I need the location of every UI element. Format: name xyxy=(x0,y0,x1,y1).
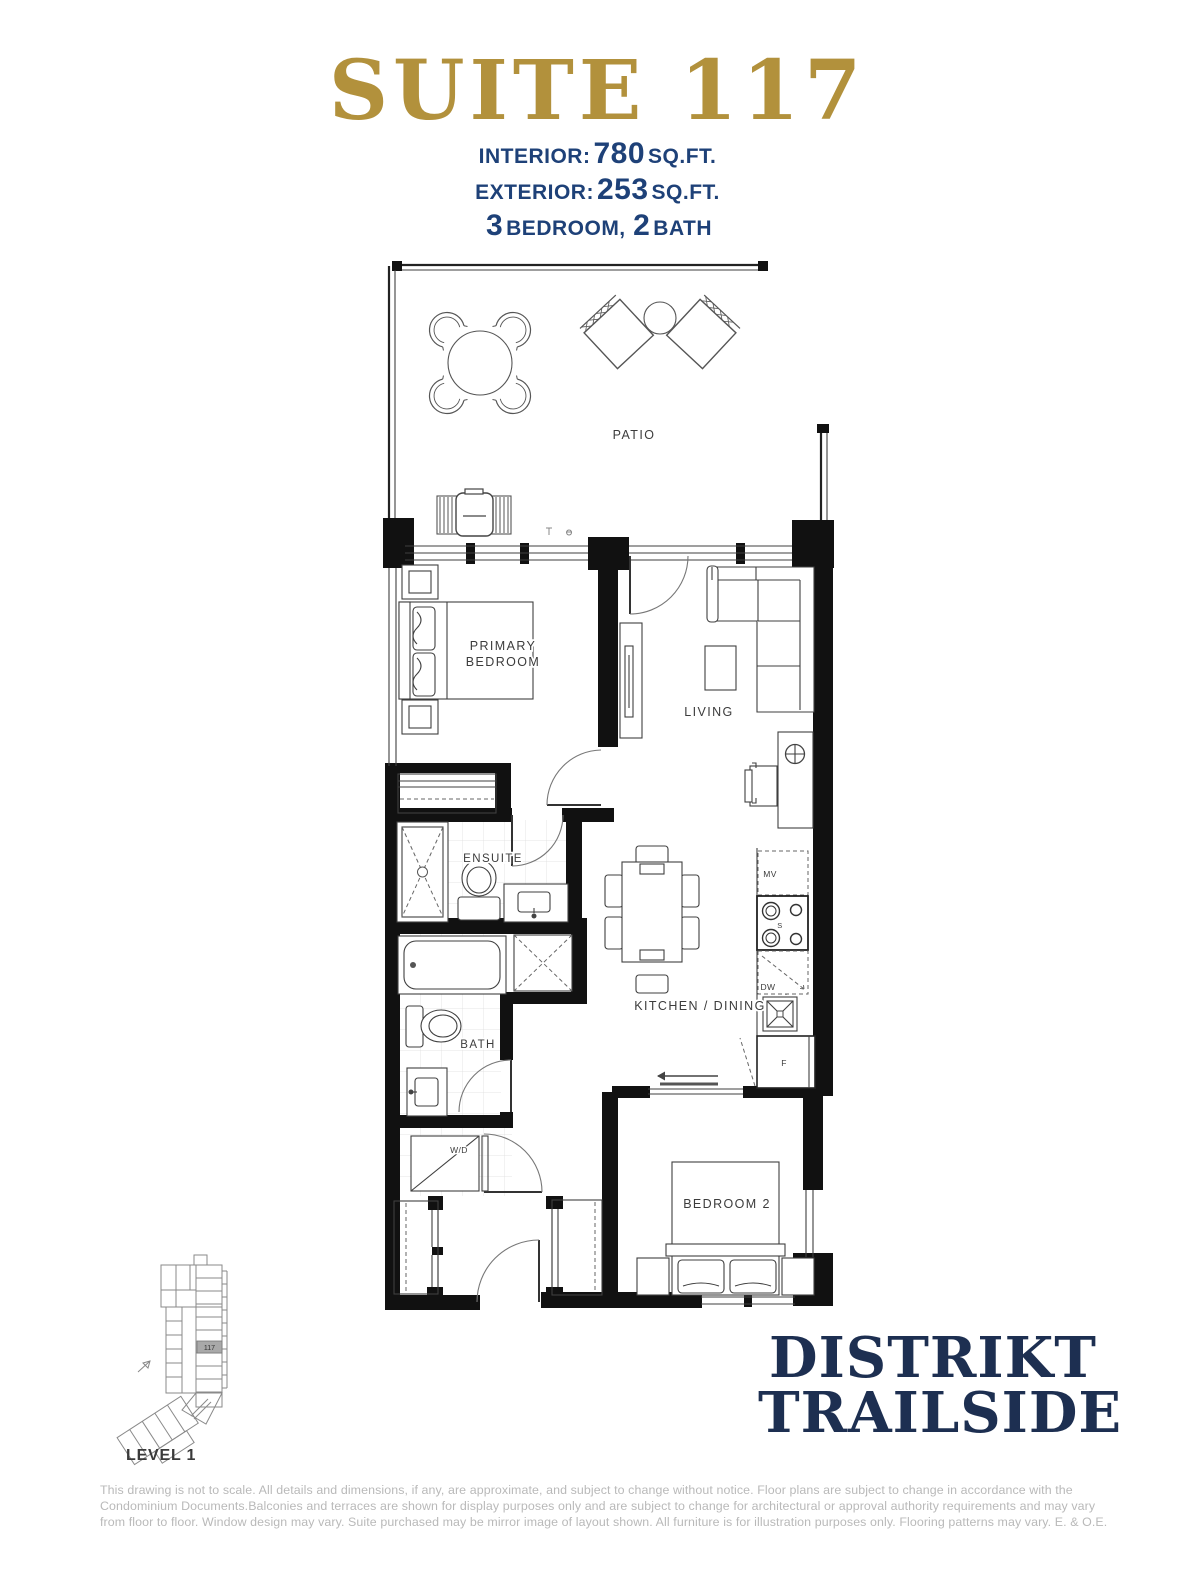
ensuite-shower xyxy=(397,822,448,922)
bathtub xyxy=(398,936,506,994)
linen-closet xyxy=(514,935,572,991)
microwave: MV xyxy=(758,851,808,895)
level-label: LEVEL 1 xyxy=(126,1447,196,1465)
coffee-table xyxy=(705,646,736,690)
patio-dining-set xyxy=(422,305,538,421)
living-room: LIVING xyxy=(620,566,814,828)
bedroom2: BEDROOM 2 xyxy=(637,1162,814,1295)
hose-bib-symbol xyxy=(546,528,572,535)
washer-dryer-label: W/D xyxy=(450,1145,468,1155)
bath-vanity xyxy=(407,1068,447,1116)
bedroom2-bed xyxy=(666,1162,785,1295)
dining-set xyxy=(605,846,699,993)
nightstand xyxy=(782,1258,814,1295)
north-arrow xyxy=(138,1361,150,1372)
floorplan-page: SUITE 117 INTERIOR:780SQ.FT. EXTERIOR:25… xyxy=(0,0,1195,1586)
key-plan: 117 xyxy=(117,1255,227,1476)
tv-console xyxy=(620,623,642,738)
nightstand xyxy=(402,700,438,734)
nightstand xyxy=(637,1258,669,1295)
bath-label: BATH xyxy=(460,1039,495,1051)
kitchen-sink xyxy=(763,997,797,1031)
bedroom2-sliding-door xyxy=(648,1072,743,1095)
patio-area: PATIO xyxy=(389,261,829,536)
primary-bedroom-label-1: PRIMARY xyxy=(470,639,537,653)
brand-logo: DISTRIKT TRAILSIDE xyxy=(758,1331,1108,1442)
fridge: F xyxy=(757,1036,815,1088)
foyer-closet-left xyxy=(394,1201,438,1294)
microwave-label: MV xyxy=(763,869,777,879)
dishwasher: DW xyxy=(758,951,808,994)
slide-direction-arrow xyxy=(657,1072,665,1081)
primary-closet xyxy=(398,774,496,813)
primary-bedroom-door xyxy=(547,750,601,805)
logo-line-2: TRAILSIDE xyxy=(758,1386,1108,1441)
logo-line-1: DISTRIKT xyxy=(758,1331,1108,1386)
pantry-door-dashed xyxy=(740,1038,755,1086)
stove: S xyxy=(757,896,808,950)
patio-label: PATIO xyxy=(613,428,656,442)
disclaimer-text: This drawing is not to scale. All detail… xyxy=(100,1483,1108,1531)
bbq-grill xyxy=(437,489,511,536)
bedroom2-label: BEDROOM 2 xyxy=(683,1197,771,1211)
foyer-closet-right xyxy=(552,1200,602,1295)
kitchen-dining-label: KITCHEN / DINING xyxy=(634,999,765,1013)
patio-door xyxy=(630,556,688,614)
dishwasher-label: DW xyxy=(761,982,776,992)
stove-label: S xyxy=(777,921,782,930)
ensuite-label: ENSUITE xyxy=(463,853,523,865)
patio-lounge-chairs xyxy=(580,295,740,369)
desk xyxy=(745,732,813,828)
kitchen-dining: MV S DW xyxy=(605,846,815,1088)
keyplan-unit-label: 117 xyxy=(204,1345,215,1352)
fridge-label: F xyxy=(781,1058,787,1068)
nightstand xyxy=(402,565,438,599)
washer-dryer: W/D xyxy=(411,1136,488,1191)
primary-bedroom-label-2: BEDROOM xyxy=(466,655,540,669)
suite-entry-door xyxy=(477,1240,539,1302)
ensuite-vanity xyxy=(504,884,568,922)
living-label: LIVING xyxy=(684,705,733,719)
primary-bedroom: PRIMARY BEDROOM xyxy=(398,565,540,813)
